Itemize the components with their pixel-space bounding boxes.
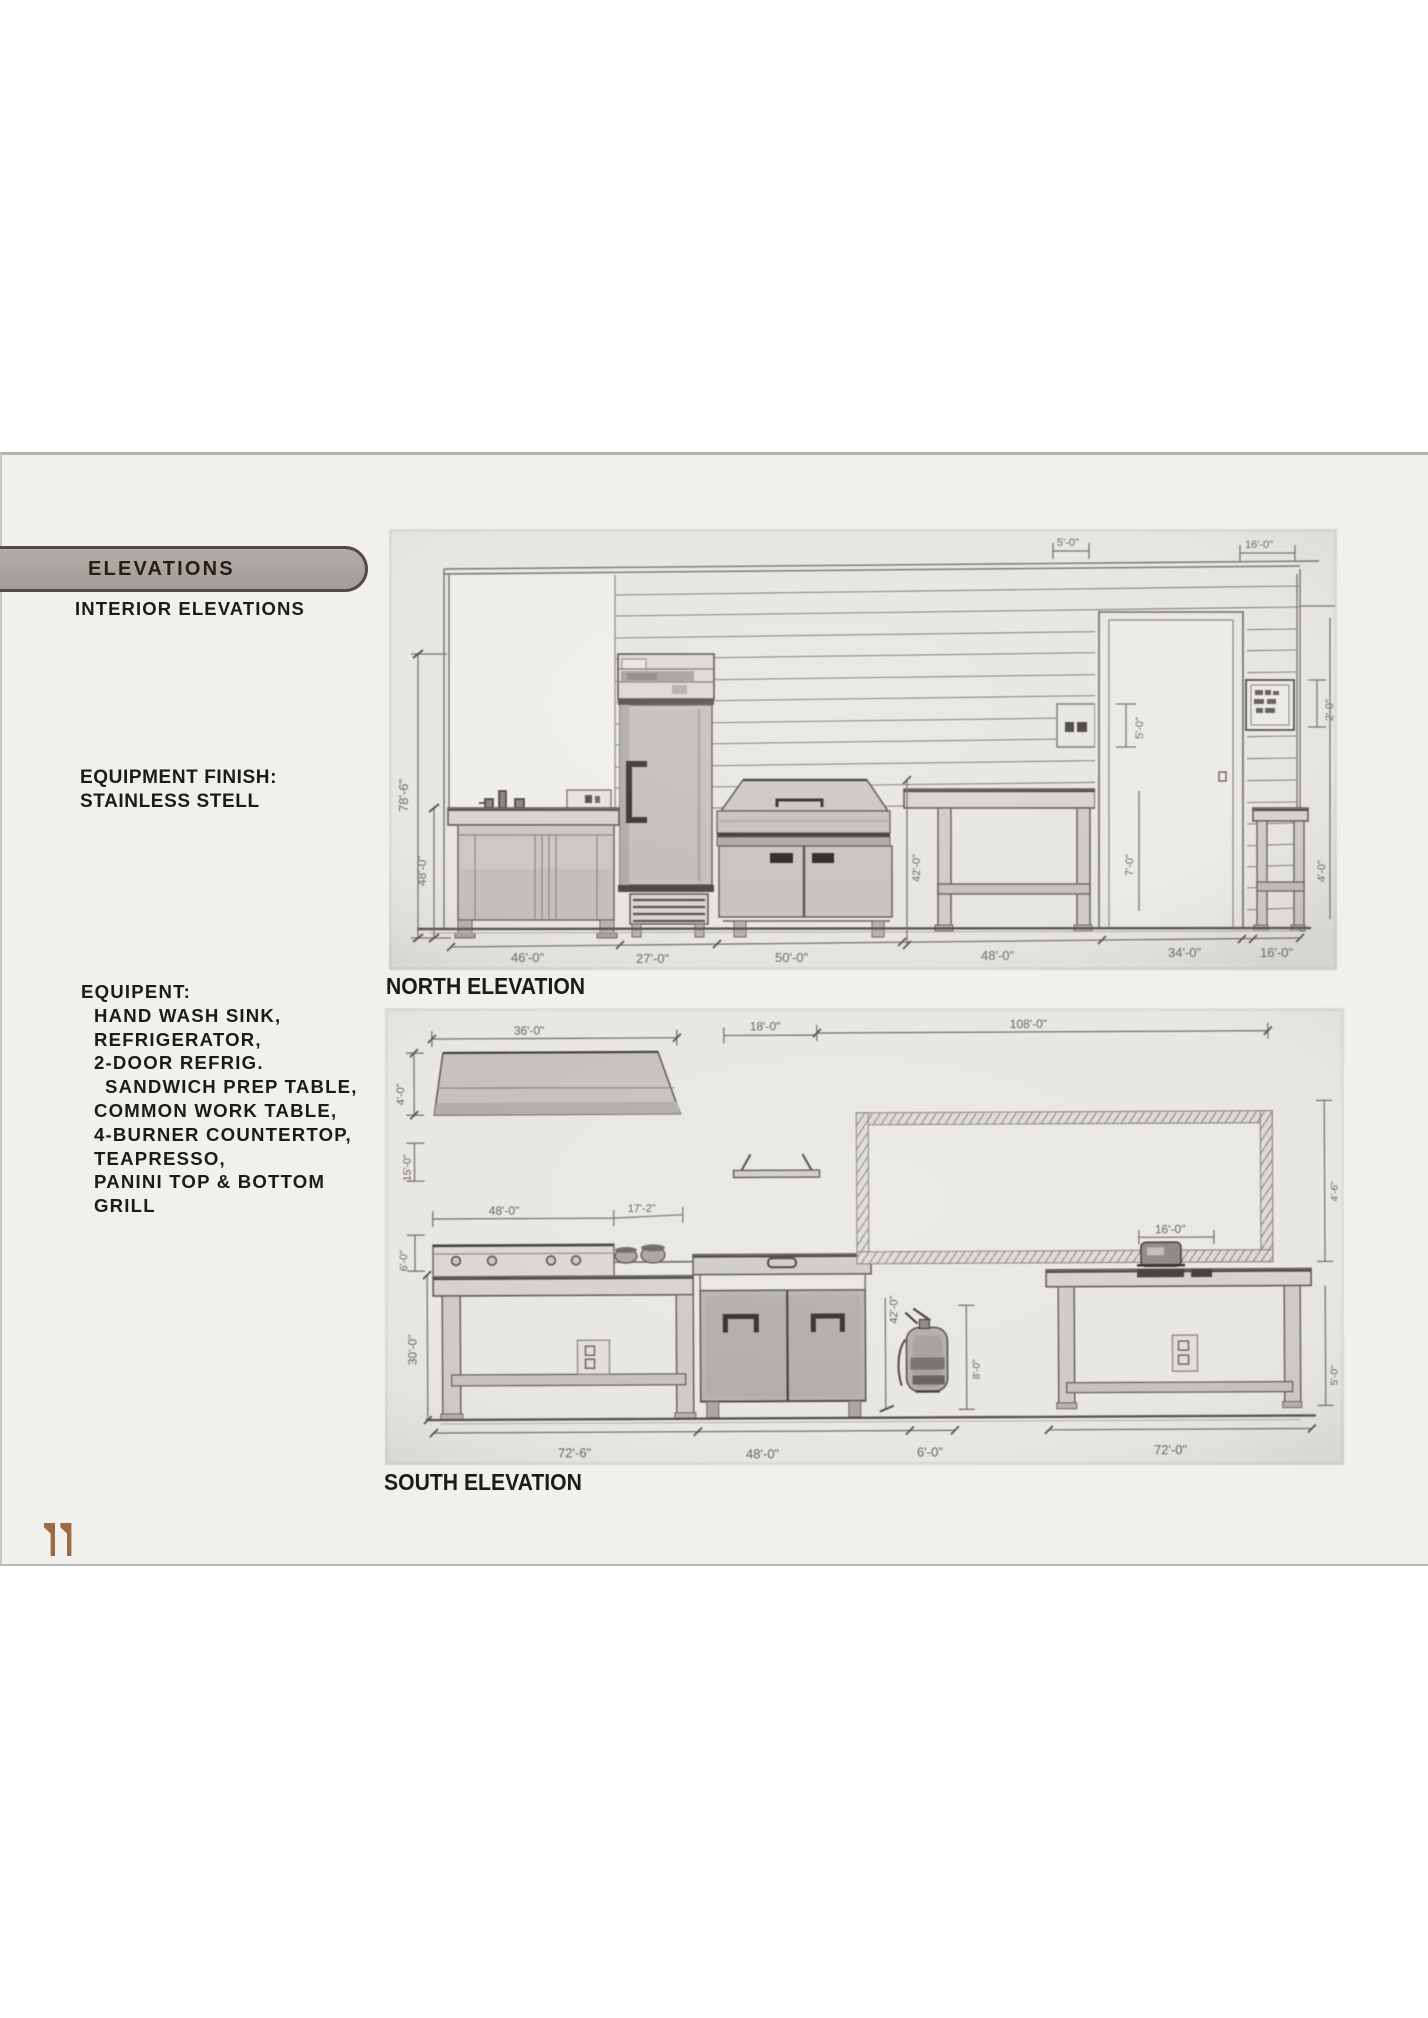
svg-text:48'-0": 48'-0" [415, 855, 429, 886]
svg-text:108'-0": 108'-0" [1010, 1017, 1047, 1031]
svg-text:4'-0": 4'-0" [395, 1083, 407, 1105]
svg-text:2'-0": 2'-0" [1324, 699, 1336, 721]
svg-text:42'-0": 42'-0" [911, 854, 923, 882]
svg-text:5'-0": 5'-0" [1330, 1365, 1341, 1385]
svg-text:16'-0": 16'-0" [1260, 945, 1294, 960]
svg-text:72'-6": 72'-6" [558, 1445, 592, 1460]
svg-text:36'-0": 36'-0" [514, 1023, 545, 1037]
svg-text:18'-0": 18'-0" [750, 1019, 781, 1033]
svg-text:16'-0": 16'-0" [1155, 1222, 1186, 1236]
svg-text:4'-0": 4'-0" [1316, 860, 1328, 882]
svg-text:5'-0": 5'-0" [1057, 537, 1079, 549]
svg-text:30'-0": 30'-0" [405, 1335, 419, 1366]
svg-text:46'-0": 46'-0" [511, 950, 545, 965]
svg-text:7'-0": 7'-0" [1124, 854, 1136, 876]
svg-text:48'-0": 48'-0" [746, 1446, 780, 1461]
svg-text:48'-0": 48'-0" [489, 1204, 520, 1218]
svg-text:50'-0": 50'-0" [775, 950, 809, 965]
svg-text:4'-6": 4'-6" [1330, 1181, 1341, 1201]
svg-text:72'-0": 72'-0" [1154, 1442, 1188, 1457]
svg-text:5'-0": 5'-0" [1134, 717, 1146, 739]
svg-text:27'-0": 27'-0" [636, 951, 670, 966]
svg-text:6'-0": 6'-0" [398, 1250, 410, 1271]
svg-text:15'-0": 15'-0" [401, 1154, 413, 1181]
svg-text:48'-0": 48'-0" [981, 948, 1015, 963]
svg-text:17'-2": 17'-2" [628, 1203, 656, 1215]
svg-text:16'-0": 16'-0" [1245, 539, 1273, 551]
svg-text:42'-0": 42'-0" [888, 1296, 900, 1324]
svg-text:6'-0": 6'-0" [917, 1444, 943, 1459]
svg-text:78'-6": 78'-6" [396, 778, 411, 812]
svg-text:8'-0": 8'-0" [972, 1359, 983, 1379]
svg-text:34'-0": 34'-0" [1168, 945, 1202, 960]
